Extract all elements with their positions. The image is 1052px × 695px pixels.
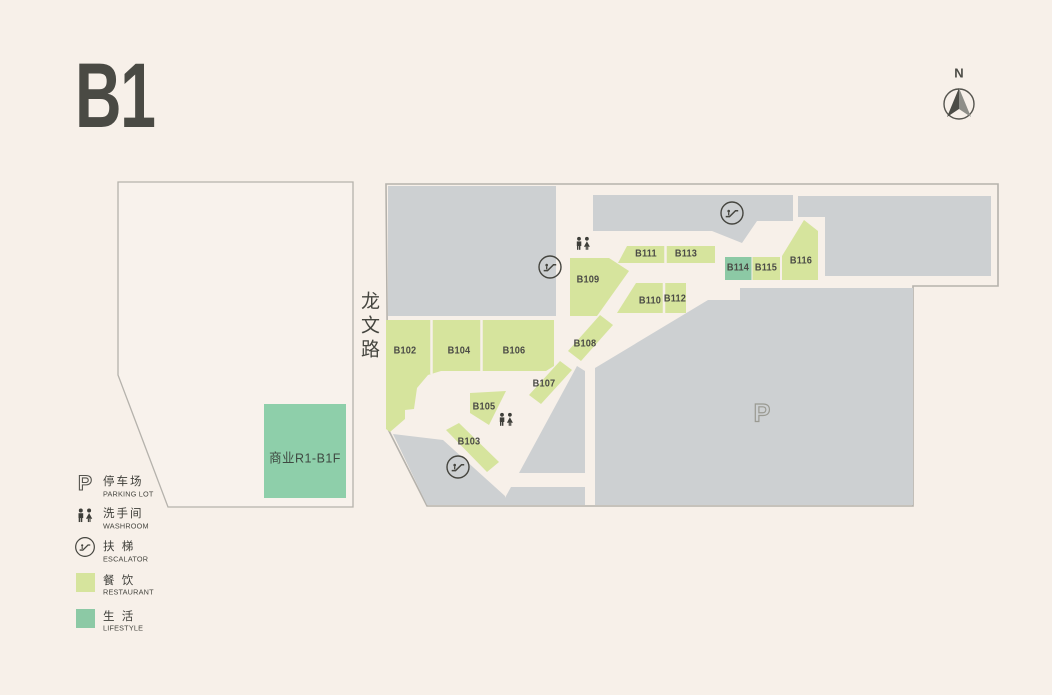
- unit-label-b115[interactable]: B115: [755, 263, 777, 274]
- gray-strip-bottom-center: [501, 487, 585, 505]
- legend-lifestyle-cn: 生 活: [103, 608, 135, 624]
- legend-restaurant-swatch: [76, 573, 95, 592]
- legend-washroom-cn: 洗手间: [103, 505, 144, 521]
- b1-floor-map-page: B1 N 龙文路 商业R1-B1F P B102 B103 B104 B105 …: [0, 0, 1052, 695]
- legend-restaurant-en: RESTAURANT: [103, 588, 154, 597]
- legend-parking-icon: P: [78, 472, 92, 496]
- unit-label-b104[interactable]: B104: [448, 346, 471, 357]
- legend-washroom-icon: [78, 508, 92, 522]
- legend-parking-en: PARKING LOT: [103, 490, 154, 499]
- legend-parking-cn: 停车场: [103, 473, 144, 489]
- structure-block-northeast: [798, 196, 991, 276]
- north-label: N: [954, 66, 963, 81]
- parking-block-northwest: [388, 186, 556, 316]
- unit-label-b110[interactable]: B110: [639, 296, 661, 307]
- legend-washroom-en: WASHROOM: [103, 522, 149, 531]
- unit-label-b112[interactable]: B112: [664, 294, 686, 305]
- legend-lifestyle-swatch: [76, 609, 95, 628]
- unit-label-b102[interactable]: B102: [394, 346, 417, 357]
- parking-area-symbol: P: [754, 400, 771, 429]
- unit-label-b116[interactable]: B116: [790, 256, 812, 267]
- unit-label-b113[interactable]: B113: [675, 249, 697, 260]
- unit-label-b114[interactable]: B114: [727, 263, 749, 274]
- legend-restaurant-cn: 餐 饮: [103, 572, 135, 588]
- unit-label-b107[interactable]: B107: [533, 379, 556, 390]
- floor-map-canvas: [0, 0, 1052, 695]
- unit-label-b108[interactable]: B108: [574, 339, 597, 350]
- legend-lifestyle-en: LIFESTYLE: [103, 624, 143, 633]
- legend-escalator-en: ESCALATOR: [103, 555, 148, 564]
- north-compass-icon: [944, 88, 974, 119]
- road-label: 龙文路: [355, 291, 382, 363]
- unit-label-b111[interactable]: B111: [635, 249, 657, 260]
- left-building-label[interactable]: 商业R1-B1F: [269, 448, 341, 467]
- legend-escalator-icon: [76, 538, 95, 557]
- unit-label-b109[interactable]: B109: [577, 275, 600, 286]
- unit-label-b103[interactable]: B103: [458, 437, 481, 448]
- unit-label-b105[interactable]: B105: [473, 402, 496, 413]
- unit-label-b106[interactable]: B106: [503, 346, 526, 357]
- legend-escalator-cn: 扶 梯: [103, 538, 135, 554]
- floor-title: B1: [75, 50, 155, 142]
